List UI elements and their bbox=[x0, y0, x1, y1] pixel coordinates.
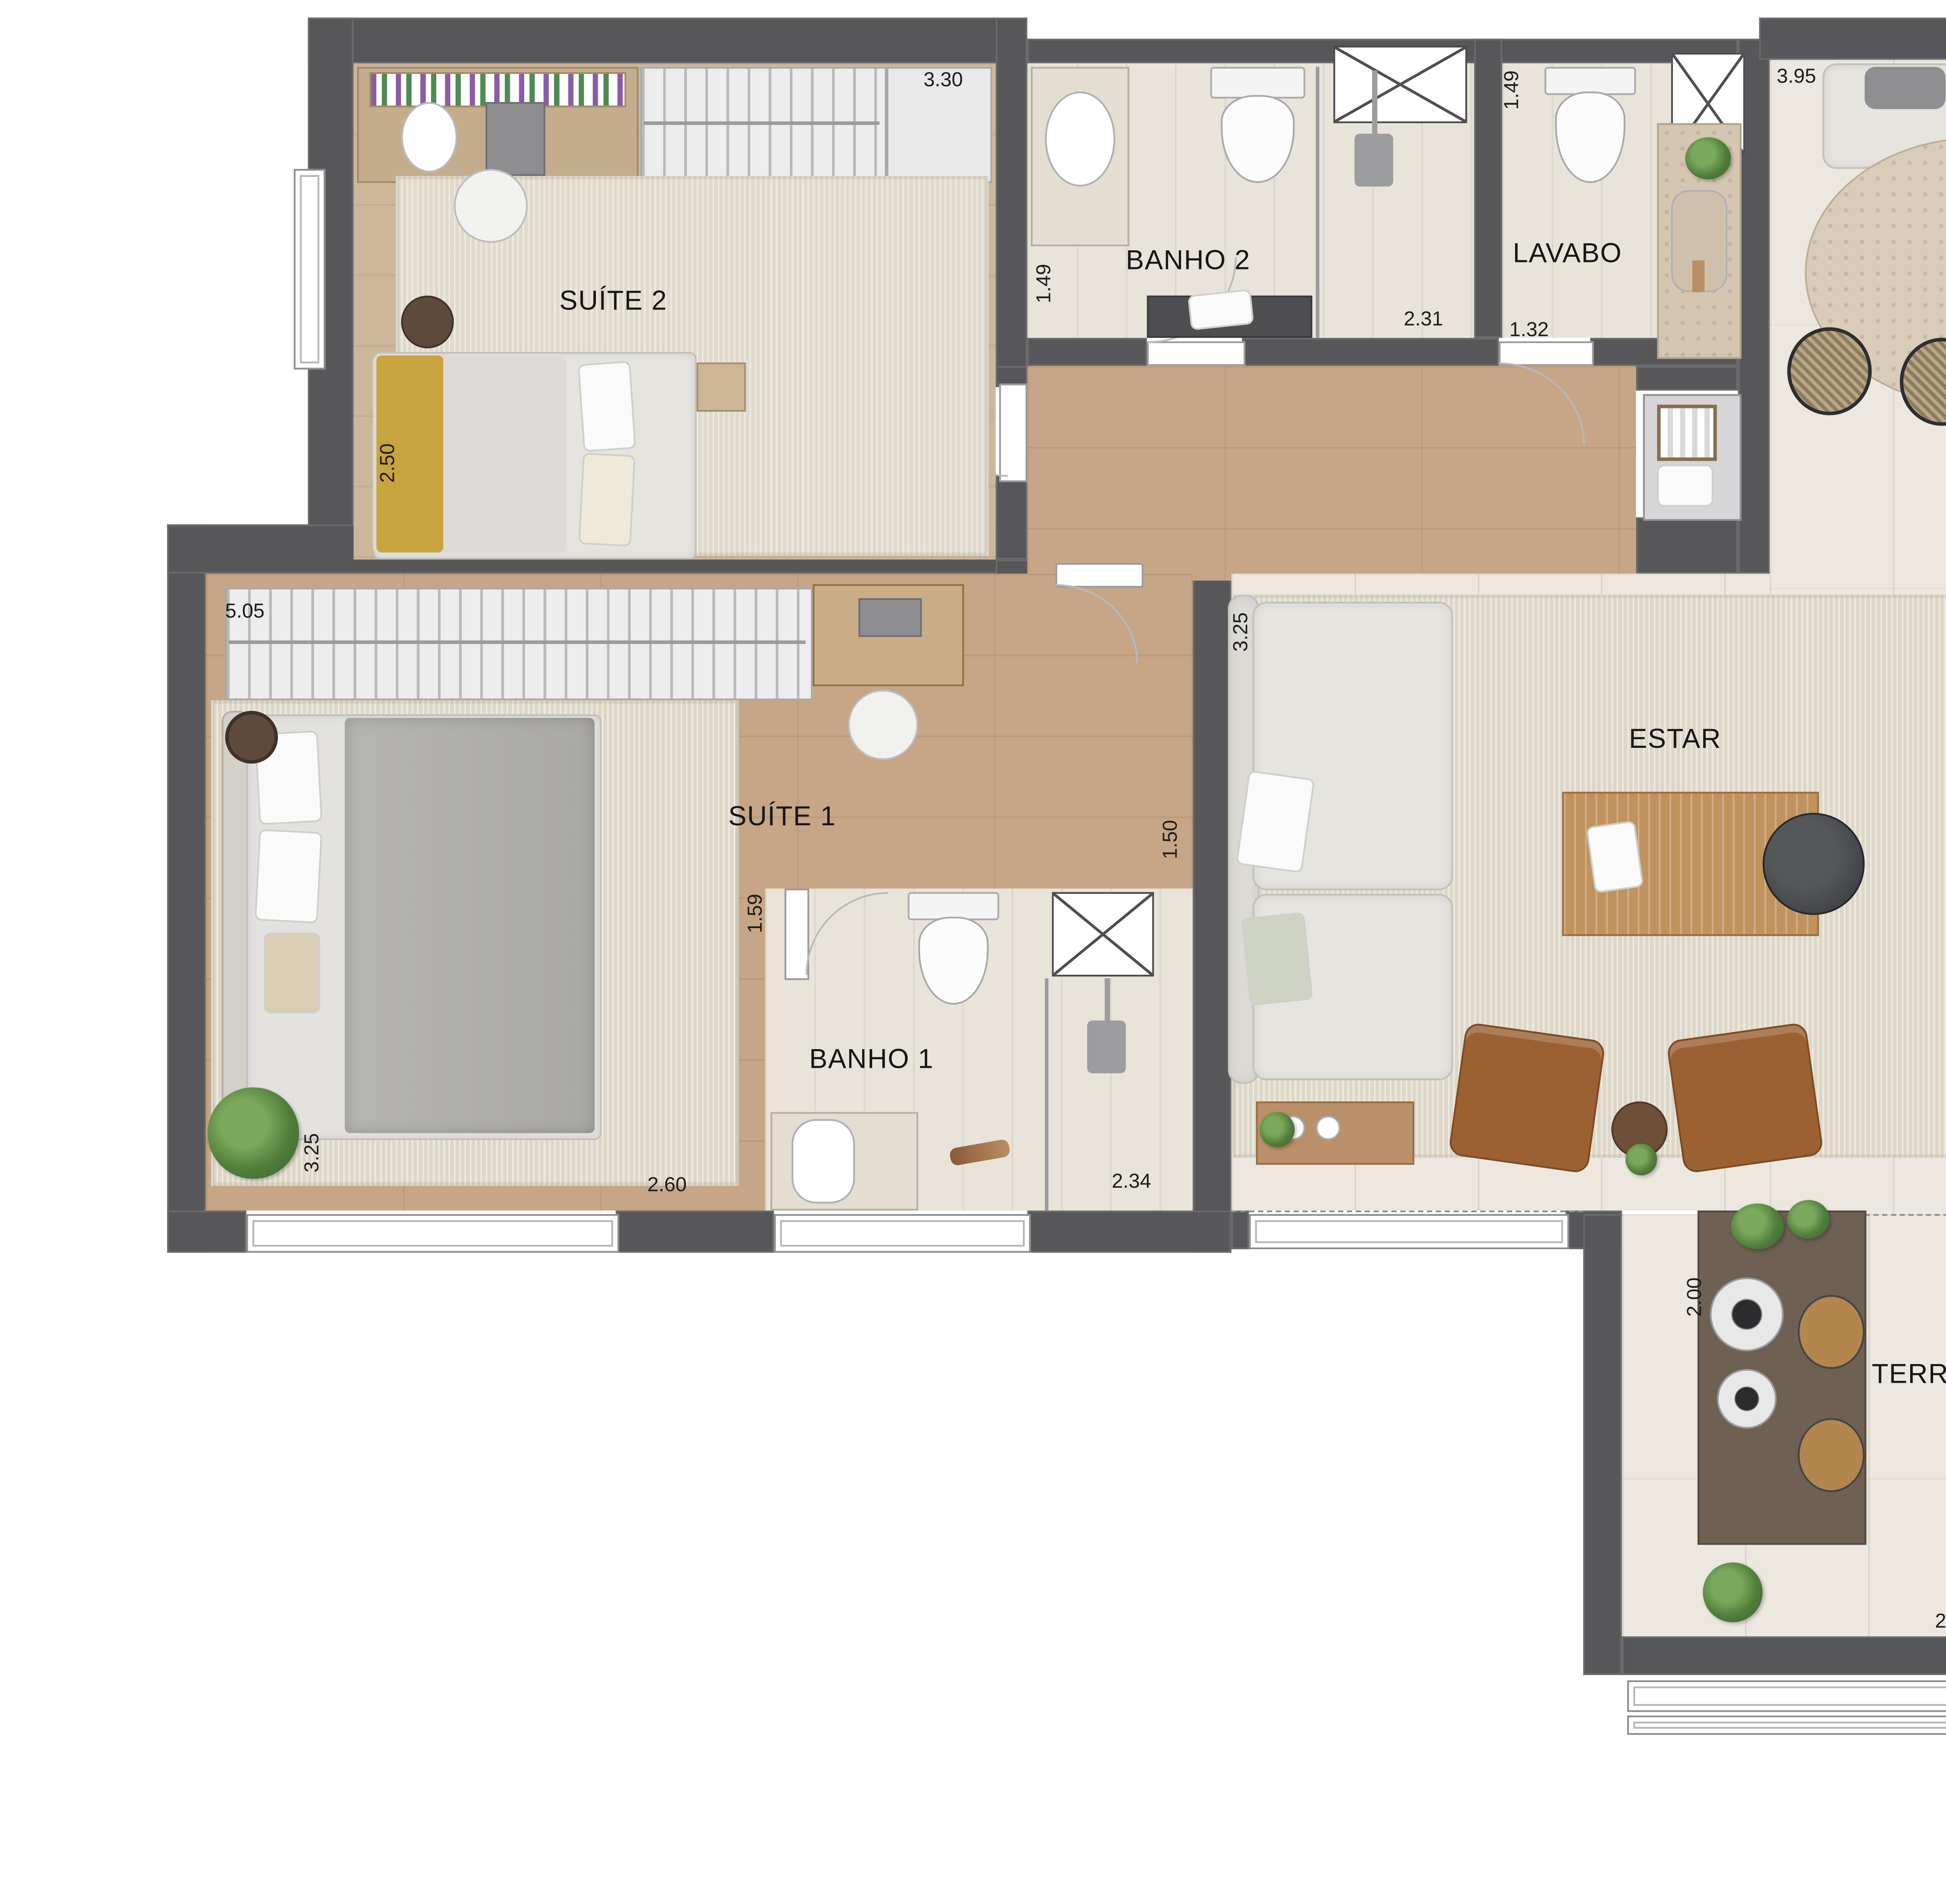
plant-icon bbox=[1625, 1144, 1657, 1175]
wall-mirror-icon bbox=[225, 711, 278, 764]
wall-segment bbox=[1193, 559, 1231, 1253]
room-label-banho2: BANHO 2 bbox=[1126, 246, 1250, 278]
shower-glass bbox=[1045, 978, 1049, 1211]
mirror-icon bbox=[401, 102, 458, 172]
armchair-icon bbox=[1448, 1022, 1606, 1174]
window bbox=[1627, 1716, 1946, 1735]
plant-icon bbox=[207, 1087, 299, 1179]
plant-icon bbox=[1259, 1112, 1294, 1147]
window bbox=[246, 1214, 619, 1253]
basket-towels bbox=[1657, 405, 1717, 461]
bar-stool bbox=[1798, 1418, 1865, 1492]
room-label-suite1: SUÍTE 1 bbox=[728, 802, 836, 834]
dim-suite2-depth: 2.50 bbox=[378, 443, 399, 483]
plant-icon bbox=[1731, 1204, 1784, 1250]
pillow bbox=[1241, 912, 1313, 1006]
closet-rod bbox=[229, 640, 806, 643]
suite1-duvet bbox=[345, 718, 595, 1133]
dim-banho2-width: 2.31 bbox=[1404, 309, 1443, 331]
wall-segment bbox=[1027, 338, 1147, 366]
grill-plate-icon bbox=[1710, 1277, 1784, 1351]
book bbox=[1586, 820, 1644, 893]
duct-x-icon bbox=[1052, 892, 1154, 977]
shower-glass bbox=[1316, 67, 1319, 338]
room-label-lavabo: LAVABO bbox=[1513, 239, 1622, 271]
dim-terraco-depth: 2.00 bbox=[1685, 1277, 1706, 1317]
folded-towel bbox=[1657, 464, 1714, 506]
wall-segment bbox=[1583, 1214, 1622, 1675]
wall-segment bbox=[1231, 1211, 1249, 1249]
shower-arm bbox=[1105, 978, 1109, 1024]
suite1-door bbox=[1056, 563, 1143, 587]
suite1-closet-hangers-icon bbox=[225, 588, 813, 700]
plant-icon bbox=[1787, 1200, 1829, 1239]
dim-lavabo-depth: 1.49 bbox=[1502, 70, 1523, 110]
plant-icon bbox=[1685, 137, 1731, 179]
shower-head-icon bbox=[1354, 134, 1393, 187]
pouf-icon bbox=[401, 295, 454, 348]
lavabo-door bbox=[1499, 341, 1594, 366]
dim-hall-width: 1.50 bbox=[1161, 820, 1182, 859]
banho1-door bbox=[785, 888, 809, 980]
wall-segment bbox=[996, 18, 1027, 369]
banho2-door bbox=[1147, 341, 1245, 366]
wall-segment bbox=[1636, 366, 1738, 390]
floor-plan: SUÍTE 2 BANHO 2 LAVABO JANTAR SUÍTE 1 BA… bbox=[0, 0, 1946, 1904]
wall-segment bbox=[1242, 338, 1499, 366]
wall-segment bbox=[1759, 18, 1946, 60]
floor-transition bbox=[1231, 1211, 1583, 1213]
room-label-estar: ESTAR bbox=[1629, 725, 1721, 756]
dim-lavabo-width: 1.32 bbox=[1509, 320, 1549, 341]
laptop-icon bbox=[485, 102, 545, 176]
room-label-terraco: TERRAÇO bbox=[1872, 1360, 1946, 1392]
duct-x-icon bbox=[1333, 46, 1467, 123]
banho2-sink-icon bbox=[1045, 91, 1115, 186]
shower-arm bbox=[1372, 70, 1376, 137]
wall-segment bbox=[996, 475, 1027, 559]
bar-counter bbox=[1698, 1211, 1867, 1545]
dim-estar-depth: 3.25 bbox=[1231, 612, 1252, 652]
plant-icon bbox=[1703, 1563, 1763, 1623]
dim-banho2-depth: 1.49 bbox=[1034, 264, 1056, 303]
headboard bbox=[221, 711, 249, 1144]
window bbox=[774, 1214, 1031, 1253]
wall-segment bbox=[167, 524, 205, 1253]
dining-chair bbox=[1787, 327, 1872, 415]
dim-suite1-width: 5.05 bbox=[225, 602, 265, 623]
floor-transition bbox=[1865, 1214, 1946, 1216]
towel bbox=[1187, 289, 1254, 331]
wall-segment bbox=[1027, 1211, 1231, 1253]
toilet-tank bbox=[1544, 67, 1636, 95]
suite2-closet-hangers-icon bbox=[640, 67, 887, 183]
window bbox=[294, 169, 325, 369]
shower-head-icon bbox=[1087, 1020, 1126, 1073]
toilet-tank bbox=[908, 892, 999, 920]
armchair-icon bbox=[1666, 1022, 1824, 1174]
wall-segment bbox=[1622, 1636, 1946, 1675]
desk-tv-icon bbox=[859, 598, 922, 637]
banho1-sink-icon bbox=[792, 1119, 855, 1204]
closet-rod bbox=[644, 121, 880, 124]
wall-segment bbox=[616, 1211, 774, 1253]
wall-segment bbox=[1474, 39, 1502, 338]
dim-terraco-width: 2.41 bbox=[1935, 1612, 1946, 1633]
dim-suite2-width: 3.30 bbox=[924, 70, 963, 91]
grill-plate-icon bbox=[1717, 1369, 1777, 1429]
pillow bbox=[578, 453, 636, 547]
nightstand bbox=[697, 362, 746, 412]
bar-stool bbox=[1798, 1295, 1865, 1369]
faucet-icon bbox=[1692, 260, 1705, 292]
pillow bbox=[1236, 770, 1315, 874]
bowl bbox=[1316, 1116, 1340, 1140]
room-label-banho1: BANHO 1 bbox=[809, 1045, 934, 1077]
pillow bbox=[255, 829, 323, 923]
dim-suite1-width2: 2.60 bbox=[647, 1175, 687, 1196]
dim-suite1-depth: 3.25 bbox=[302, 1133, 323, 1173]
toilet-tank bbox=[1210, 67, 1305, 98]
desk-chair bbox=[454, 169, 528, 243]
pillow bbox=[264, 932, 320, 1013]
window bbox=[1627, 1680, 1946, 1712]
window bbox=[1249, 1214, 1569, 1249]
banquette-cushion bbox=[1865, 67, 1946, 109]
round-tray bbox=[1763, 813, 1865, 915]
desk-chair bbox=[848, 690, 919, 760]
wall-segment bbox=[1636, 517, 1738, 574]
wall-segment bbox=[308, 18, 998, 63]
pillow bbox=[578, 361, 636, 452]
wall-segment bbox=[167, 1211, 246, 1253]
dim-banho1-depth: 1.59 bbox=[746, 894, 767, 933]
dim-banho1-width: 2.34 bbox=[1112, 1172, 1151, 1193]
room-label-suite2: SUÍTE 2 bbox=[559, 287, 667, 318]
dim-jantar-width: 3.95 bbox=[1777, 67, 1816, 88]
